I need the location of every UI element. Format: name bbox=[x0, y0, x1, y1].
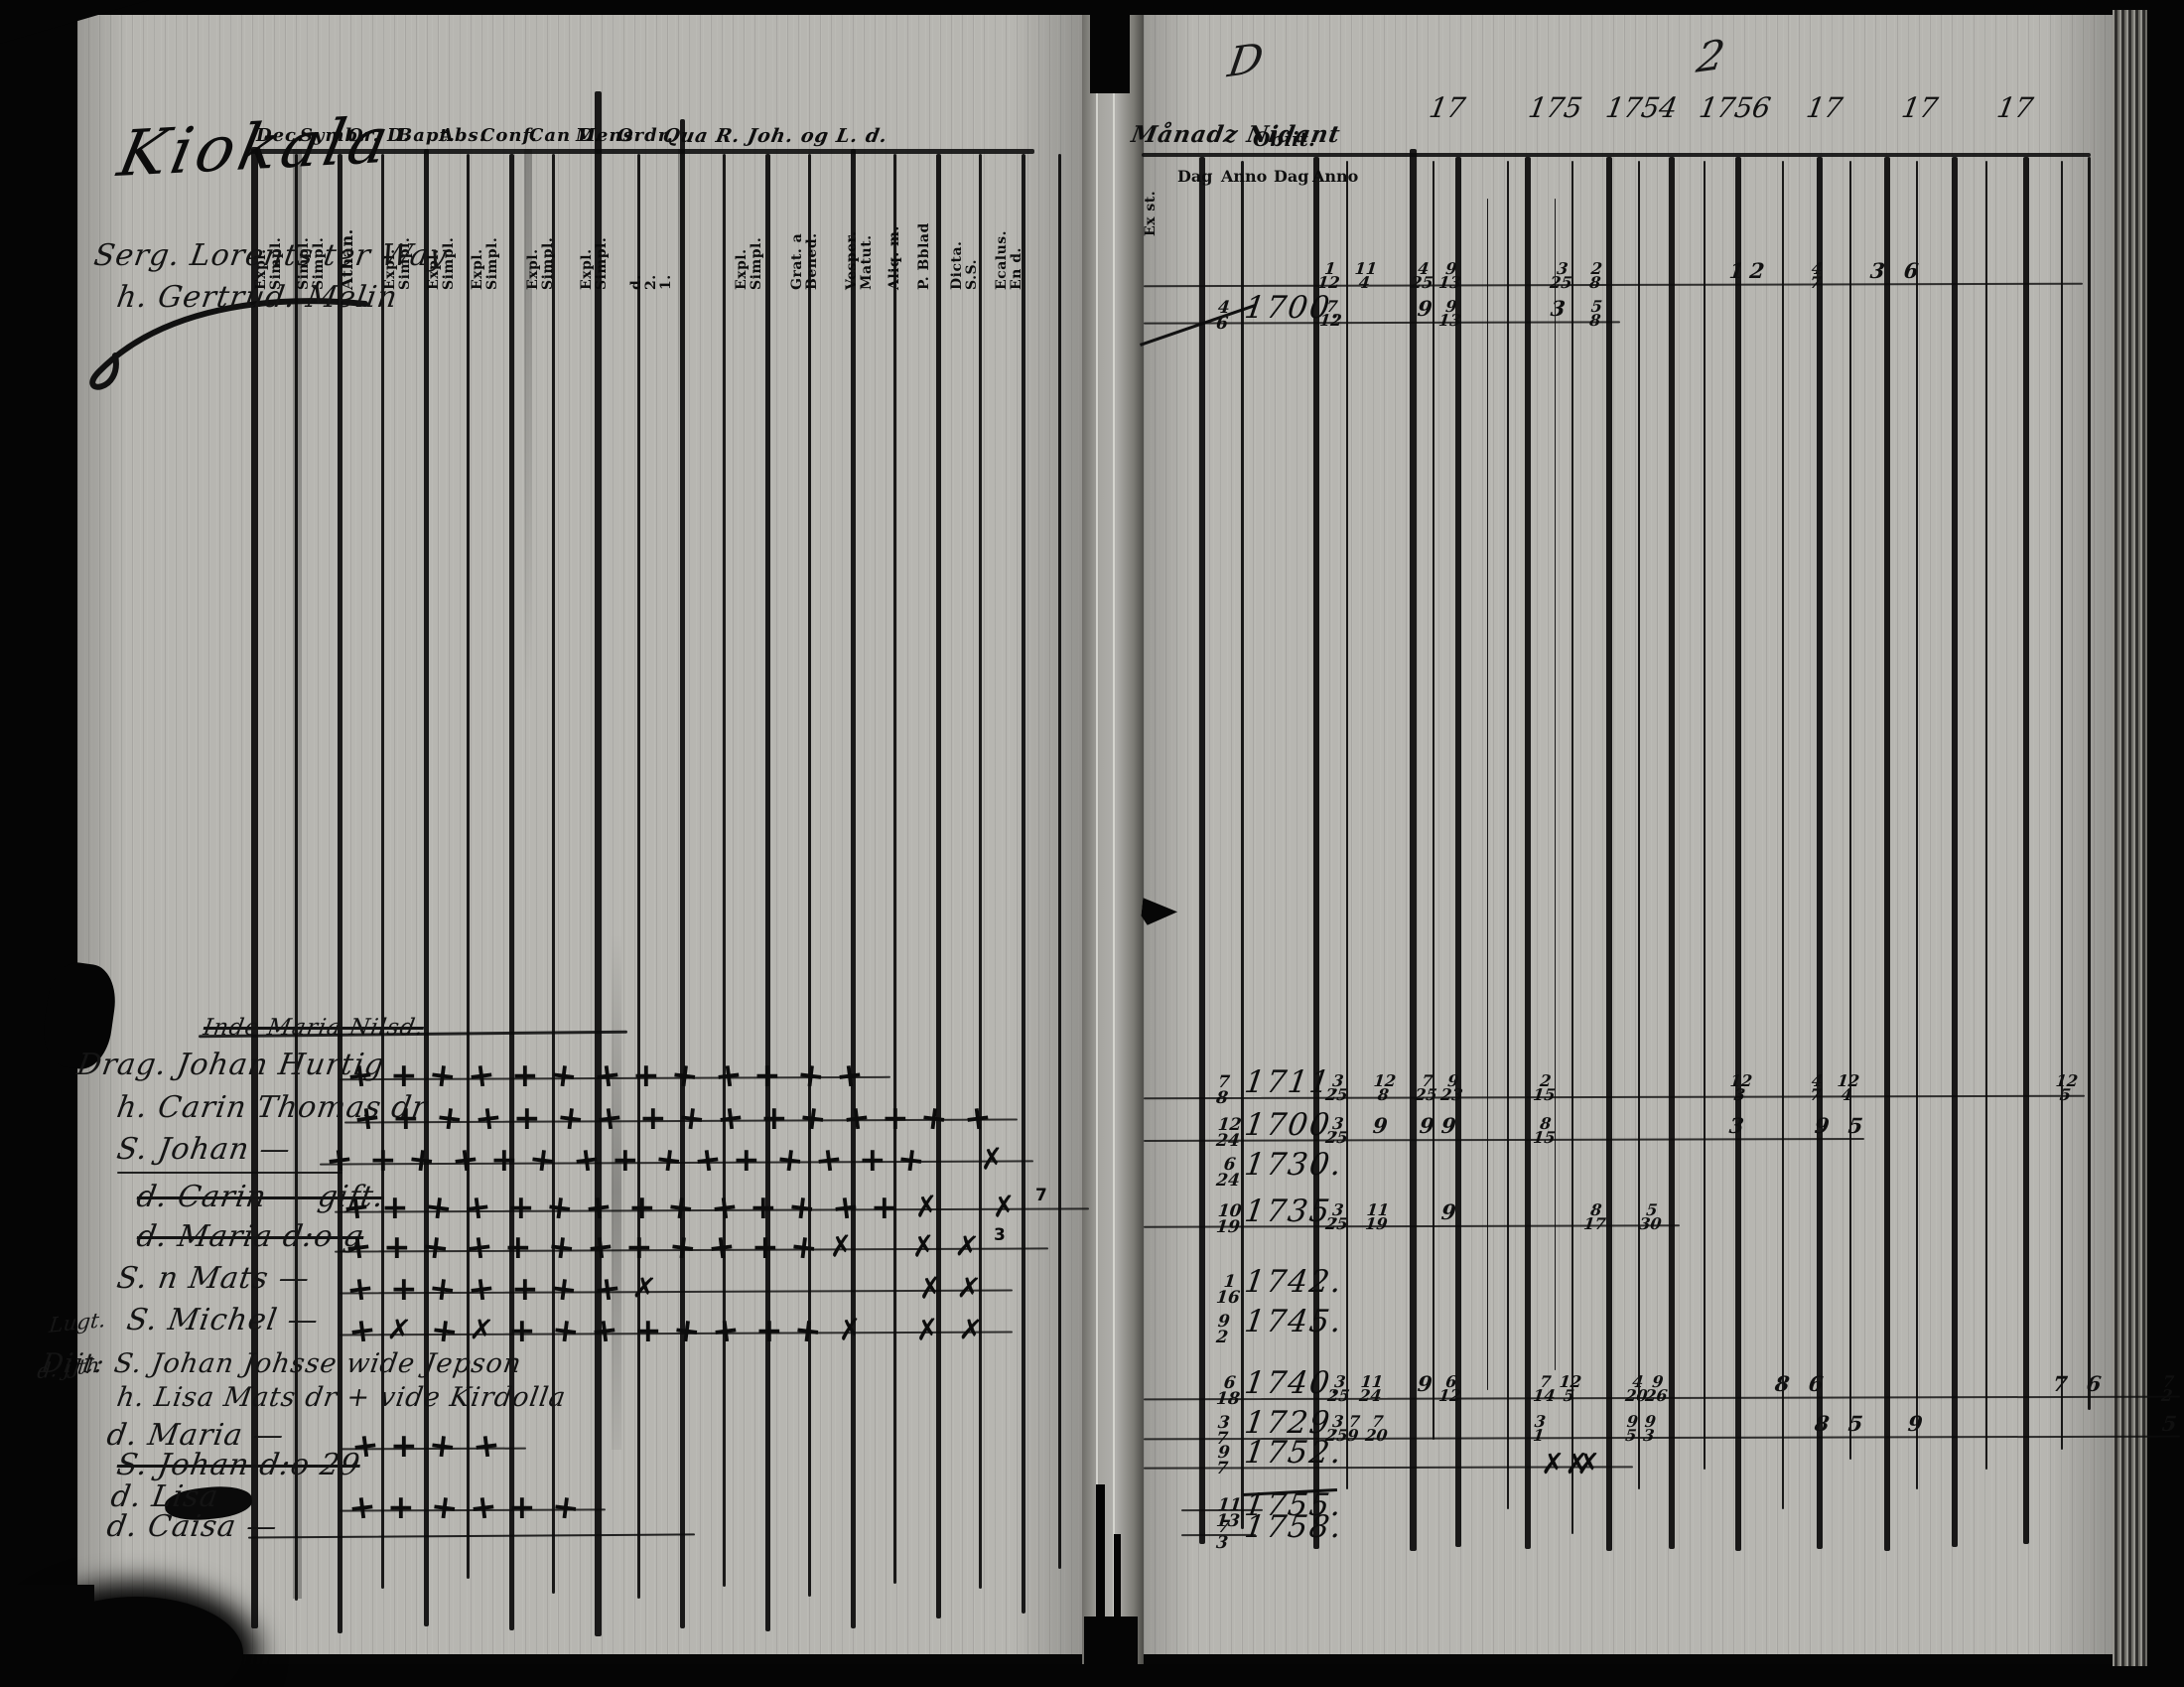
column-label-line: Ex st. bbox=[1144, 191, 1159, 236]
mark-plus-icon: + bbox=[715, 1096, 747, 1138]
ruled-line-vertical bbox=[1704, 161, 1706, 1470]
fraction-part: 24 bbox=[1215, 1173, 1240, 1189]
fraction-part: 3 bbox=[1643, 1429, 1656, 1443]
mark-plus-icon: + bbox=[750, 1188, 777, 1226]
mark-x-icon: ✗ bbox=[958, 1312, 985, 1347]
mark-x-icon: ✗ bbox=[386, 1312, 413, 1347]
fraction-part: 16 bbox=[1215, 1290, 1240, 1306]
mark-plus-icon: + bbox=[387, 1487, 415, 1526]
mark-x-icon: ✗ bbox=[910, 1228, 937, 1264]
column-label: Dicta.S.S. bbox=[950, 241, 980, 290]
entry-name: h. Lisa Mats dr + vide Kirdolla bbox=[115, 1382, 569, 1413]
ruled-line-vertical bbox=[1952, 157, 1958, 1547]
mark-plus-icon: + bbox=[671, 1309, 703, 1350]
ruled-line-vertical bbox=[1058, 154, 1061, 1569]
mark-plus-icon: + bbox=[546, 1225, 578, 1267]
gutter-highlight-line bbox=[1113, 0, 1115, 1687]
mark-plus-icon: + bbox=[508, 1487, 536, 1526]
mark-plus-icon: + bbox=[423, 1186, 455, 1227]
mark-plus-icon: + bbox=[527, 1138, 559, 1180]
ruled-line-vertical bbox=[637, 154, 640, 1599]
entry-name: h. Gertrud. Melin bbox=[114, 280, 400, 315]
fraction-part: 9 bbox=[1347, 1429, 1360, 1443]
entry-name: d. Caisa — bbox=[104, 1509, 280, 1544]
column-label-line: 1. bbox=[659, 274, 674, 290]
mark-plus-icon: + bbox=[834, 1054, 866, 1095]
fore-edge-pages bbox=[2113, 10, 2148, 1666]
mark-plus-icon: + bbox=[786, 1186, 818, 1227]
underline bbox=[117, 1172, 342, 1174]
mark-plus-icon: + bbox=[813, 1138, 845, 1180]
fraction-part: 25 bbox=[1325, 1131, 1349, 1145]
mark-plus-icon: + bbox=[383, 1227, 411, 1266]
fraction-part: 25 bbox=[1325, 1088, 1349, 1102]
fraction-part: 12 bbox=[1317, 276, 1341, 290]
ruled-line-vertical bbox=[2088, 157, 2091, 1410]
mark-x-icon: ✗ bbox=[991, 1189, 1018, 1224]
mark-plus-icon: + bbox=[508, 1311, 536, 1349]
parish-register-scan: Kiokala Månadz Nidant Obiit. Dec.Symb.Or… bbox=[0, 0, 2184, 1687]
mark-plus-icon: + bbox=[841, 1096, 873, 1138]
mark-plus-icon: + bbox=[369, 1140, 397, 1179]
ruled-line-vertical bbox=[1571, 161, 1573, 1534]
ruled-line-vertical bbox=[1669, 157, 1675, 1549]
ruled-line-vertical bbox=[1638, 161, 1640, 1489]
mark-plus-icon: + bbox=[962, 1096, 994, 1138]
mark-plus-icon: + bbox=[390, 1426, 418, 1465]
ruled-line-vertical bbox=[1735, 157, 1741, 1551]
mark-plus-icon: + bbox=[871, 1188, 898, 1226]
mark-plus-icon: + bbox=[755, 1311, 783, 1349]
obiit-label: Obiit. bbox=[1253, 127, 1315, 151]
ruled-line-vertical bbox=[595, 91, 602, 1636]
mark-plus-icon: + bbox=[381, 1188, 409, 1226]
gutter-highlight-line bbox=[1096, 0, 1098, 1687]
column-label: d.2.1. bbox=[629, 274, 674, 290]
ruled-line-vertical bbox=[893, 154, 896, 1584]
mark-x-icon: ✗ bbox=[469, 1312, 495, 1347]
mark-plus-icon: + bbox=[918, 1096, 950, 1138]
date-cell: 7 6 bbox=[2052, 1371, 2109, 1396]
fraction-part: 3 bbox=[1215, 1535, 1229, 1551]
entry-name: Drag. Johan Hurtig bbox=[74, 1048, 387, 1082]
ruled-line-vertical bbox=[1022, 154, 1025, 1614]
mark-x-icon: ✗ bbox=[954, 1228, 981, 1264]
date-cell: 9 bbox=[1417, 296, 1439, 321]
year-head: 1756 bbox=[1697, 91, 1773, 124]
header-term: Qua R. Joh. og L. d. bbox=[661, 125, 889, 147]
natus-obiit-subheader: Anno bbox=[1221, 167, 1267, 186]
fraction-part: 25 bbox=[1411, 276, 1434, 290]
ruled-line-vertical bbox=[1884, 157, 1890, 1551]
ruled-line-vertical bbox=[1313, 157, 1319, 1549]
ruled-line-vertical bbox=[1507, 161, 1509, 1509]
mark-x-icon: ✗ bbox=[913, 1189, 940, 1224]
fraction-part: 1 bbox=[1533, 1429, 1546, 1443]
mark-plus-icon: + bbox=[713, 1054, 745, 1095]
entry-name: S. Michel — bbox=[124, 1303, 321, 1337]
date-cell: 3 bbox=[1728, 1113, 1751, 1138]
ruled-line-vertical bbox=[680, 119, 685, 1628]
mark-plus-icon: + bbox=[464, 1225, 495, 1267]
fraction-part: 12 bbox=[1438, 1389, 1462, 1403]
mark-plus-icon: + bbox=[895, 1138, 927, 1180]
entry-name: d. Maria d:o g bbox=[134, 1219, 366, 1254]
mark-plus-icon: + bbox=[390, 1269, 418, 1308]
fraction-part: 19 bbox=[1365, 1217, 1389, 1231]
date-cell: 123 bbox=[1728, 1074, 1753, 1102]
mark-plus-icon: + bbox=[427, 1267, 459, 1309]
column-label-line: Simpl. bbox=[750, 237, 764, 290]
mark-x-icon: ✗ bbox=[914, 1312, 941, 1347]
birth-year: 1758. bbox=[1242, 1509, 1345, 1545]
natus-obiit-subheader: Dag bbox=[1274, 167, 1308, 186]
mark-plus-icon: + bbox=[692, 1138, 724, 1180]
mark-plus-icon: + bbox=[585, 1225, 616, 1267]
mark-plus-icon: + bbox=[507, 1188, 535, 1226]
column-label-line: Matut. bbox=[860, 230, 875, 290]
ink-streak bbox=[612, 933, 621, 1450]
ruled-line-vertical bbox=[851, 149, 856, 1628]
mark-plus-icon: + bbox=[592, 1267, 623, 1309]
mark-plus-icon: + bbox=[792, 1309, 824, 1350]
header-rule-left bbox=[250, 149, 1034, 154]
mark-plus-icon: + bbox=[669, 1054, 701, 1095]
date-cell: 9 5 bbox=[1814, 1113, 1870, 1138]
header-term: Dec. bbox=[256, 125, 304, 146]
mark-x-icon: ✗ bbox=[979, 1141, 1006, 1177]
ruled-line-vertical bbox=[765, 154, 770, 1631]
fraction-part: 8 bbox=[1589, 276, 1602, 290]
column-label-line: P. Bblad bbox=[917, 222, 932, 290]
date-cell: 8 5 bbox=[1814, 1411, 1870, 1436]
mark-plus-icon: + bbox=[710, 1309, 742, 1350]
ruled-line-vertical bbox=[979, 154, 982, 1589]
corner-fill-bottom-left bbox=[0, 1585, 94, 1687]
date-cell: 9 bbox=[1907, 1411, 1930, 1436]
mark-plus-icon: + bbox=[612, 1140, 639, 1179]
ruled-line-vertical bbox=[808, 154, 811, 1597]
row-rule bbox=[1181, 1509, 1263, 1511]
mark-plus-icon: + bbox=[583, 1186, 614, 1227]
header-term: Abs. bbox=[440, 125, 486, 146]
mark-number: 3 bbox=[994, 1225, 1006, 1245]
ruled-line-vertical bbox=[1849, 161, 1851, 1460]
mark-plus-icon: + bbox=[490, 1140, 518, 1179]
mark-plus-icon: + bbox=[788, 1225, 820, 1267]
mark-plus-icon: + bbox=[795, 1054, 827, 1095]
date-cell: 618 bbox=[1215, 1375, 1242, 1407]
date-cell: 12 bbox=[1728, 258, 1772, 283]
scan-edge-left bbox=[0, 0, 77, 1687]
mark-plus-icon: + bbox=[592, 1054, 623, 1095]
column-label-line: Expl. bbox=[526, 237, 541, 290]
mark-plus-icon: + bbox=[733, 1140, 760, 1179]
mark-plus-icon: + bbox=[709, 1186, 741, 1227]
mark-plus-icon: + bbox=[774, 1138, 806, 1180]
column-label: Expl.Simpl. bbox=[471, 237, 500, 290]
mark-plus-icon: + bbox=[511, 1269, 539, 1308]
exst-column-label: Ex st. bbox=[1144, 191, 1159, 236]
ruled-line-vertical bbox=[1985, 161, 1987, 1470]
date-cell: 3 bbox=[1550, 296, 1572, 321]
fraction-part: 24 bbox=[1359, 1389, 1383, 1403]
fraction-part: 25 bbox=[1415, 1088, 1438, 1102]
mark-plus-icon: + bbox=[859, 1140, 887, 1179]
mark-plus-icon: + bbox=[589, 1309, 620, 1350]
mark-plus-icon: + bbox=[473, 1096, 504, 1138]
year-head: 17 bbox=[1899, 91, 1940, 124]
mark-plus-icon: + bbox=[344, 1267, 376, 1309]
fraction-part: 2 bbox=[1215, 1330, 1229, 1345]
date-cell: 9 bbox=[1419, 1113, 1441, 1138]
mark-plus-icon: + bbox=[548, 1267, 580, 1309]
mark-plus-icon: + bbox=[429, 1485, 461, 1527]
column-label: Grat. aBened. bbox=[790, 233, 820, 291]
column-label-line: Grat. a bbox=[790, 233, 805, 291]
date-cell: 817 bbox=[1583, 1203, 1608, 1231]
ruled-line-vertical bbox=[1410, 149, 1417, 1551]
entry-name: h. Carin Thomas dr bbox=[114, 1090, 430, 1125]
mark-plus-icon: + bbox=[513, 1098, 541, 1137]
mark-plus-icon: + bbox=[462, 1186, 493, 1227]
ruled-line-vertical bbox=[552, 154, 555, 1594]
date-cell: 1019 bbox=[1215, 1203, 1242, 1235]
ruled-line-vertical bbox=[2061, 161, 2063, 1450]
mark-x-icon: ✗ bbox=[1576, 1447, 1600, 1480]
fraction-part: 25 bbox=[1550, 276, 1573, 290]
mark-plus-icon: + bbox=[760, 1098, 788, 1137]
mark-plus-icon: + bbox=[665, 1186, 697, 1227]
fraction-part: 5 bbox=[1625, 1429, 1638, 1443]
mark-x-icon: ✗ bbox=[631, 1270, 658, 1306]
mark-plus-icon: + bbox=[751, 1227, 779, 1266]
fraction-part: 8 bbox=[1377, 1088, 1390, 1102]
ruled-line-vertical bbox=[1606, 157, 1612, 1551]
fraction-part: 13 bbox=[1438, 276, 1462, 290]
mark-plus-icon: + bbox=[390, 1055, 418, 1094]
mark-plus-icon: + bbox=[406, 1138, 438, 1180]
row-rule bbox=[1181, 1534, 1256, 1536]
ruled-line-vertical bbox=[936, 154, 941, 1618]
mark-plus-icon: + bbox=[628, 1188, 656, 1226]
ruled-line-vertical bbox=[1346, 161, 1348, 1489]
column-label-line: Expl. bbox=[735, 237, 750, 290]
mark-plus-icon: + bbox=[550, 1309, 582, 1350]
mark-plus-icon: + bbox=[346, 1309, 378, 1350]
ruled-line-vertical bbox=[2023, 157, 2029, 1544]
date-cell: 125 bbox=[2054, 1074, 2079, 1102]
date-cell: 124 bbox=[1836, 1074, 1860, 1102]
mark-plus-icon: + bbox=[634, 1311, 662, 1349]
ruled-line-vertical bbox=[1555, 199, 1556, 1370]
mark-plus-icon: + bbox=[706, 1225, 738, 1267]
mark-plus-icon: + bbox=[544, 1186, 576, 1227]
ruled-line-vertical bbox=[1433, 161, 1434, 1440]
year-head: 17 bbox=[1804, 91, 1844, 124]
mark-plus-icon: + bbox=[351, 1096, 383, 1138]
mark-plus-icon: + bbox=[676, 1096, 708, 1138]
mark-plus-icon: + bbox=[632, 1055, 660, 1094]
date-cell: 5 bbox=[2161, 1411, 2184, 1436]
entry-name: Dijt: S. Johan Johsse wide Jepson bbox=[40, 1348, 524, 1379]
fraction-part: 25 bbox=[1327, 1389, 1351, 1403]
year-head: 175 bbox=[1526, 91, 1584, 124]
date-cell: 8 6 bbox=[1774, 1371, 1831, 1396]
mark-plus-icon: + bbox=[427, 1054, 459, 1095]
ruled-line-vertical bbox=[1916, 161, 1918, 1489]
column-label-line: S.S. bbox=[965, 241, 980, 290]
mark-x-icon: ✗ bbox=[837, 1312, 864, 1347]
year-head: 17 bbox=[1994, 91, 2035, 124]
date-cell: 9 bbox=[1417, 1371, 1439, 1396]
column-label: P. Bblad bbox=[917, 222, 932, 290]
fraction-part: 15 bbox=[1533, 1088, 1557, 1102]
mark-plus-icon: + bbox=[468, 1485, 499, 1527]
ruled-line-vertical bbox=[723, 154, 726, 1587]
natus-obiit-subheader: Dag bbox=[1177, 167, 1212, 186]
ruled-line-vertical bbox=[1455, 157, 1461, 1547]
ruled-line-vertical bbox=[1782, 161, 1784, 1509]
fraction-part: 20 bbox=[1365, 1429, 1389, 1443]
mark-plus-icon: + bbox=[653, 1138, 685, 1180]
mark-plus-icon: + bbox=[471, 1424, 502, 1466]
column-label: Vesper.Matut. bbox=[845, 230, 875, 290]
mark-plus-icon: + bbox=[342, 1225, 374, 1267]
mark-plus-icon: + bbox=[434, 1096, 466, 1138]
date-cell: 3 6 bbox=[1869, 258, 1926, 283]
mark-x-icon: ✗ bbox=[956, 1270, 983, 1306]
mark-plus-icon: + bbox=[555, 1096, 587, 1138]
column-label-line: Ecalus. bbox=[995, 230, 1010, 290]
gutter-shadow-bottom bbox=[1084, 1617, 1138, 1687]
mark-plus-icon: + bbox=[550, 1485, 582, 1527]
date-cell: 624 bbox=[1215, 1157, 1242, 1189]
mark-plus-icon: + bbox=[466, 1054, 497, 1095]
year-head: 1754 bbox=[1603, 91, 1680, 124]
ruled-line-vertical bbox=[1199, 157, 1205, 1544]
date-cell: 9 bbox=[1440, 1113, 1463, 1138]
column-label-line: Expl. bbox=[580, 237, 595, 290]
fraction-part: 25 bbox=[1325, 1217, 1349, 1231]
mark-plus-icon: + bbox=[324, 1138, 355, 1180]
fraction-part: 12 bbox=[1319, 314, 1343, 328]
mark-plus-icon: + bbox=[548, 1054, 580, 1095]
mark-plus-icon: + bbox=[639, 1098, 667, 1137]
gutter-ink-top bbox=[1090, 14, 1130, 93]
fraction-part: 14 bbox=[1533, 1389, 1557, 1403]
mark-plus-icon: + bbox=[429, 1309, 461, 1350]
mark-number: 7 bbox=[1035, 1186, 1047, 1205]
date-cell: 1224 bbox=[1215, 1117, 1242, 1149]
ruled-line-vertical bbox=[1817, 157, 1823, 1549]
date-cell: 530 bbox=[1639, 1203, 1664, 1231]
column-label-line: Expl. bbox=[471, 237, 485, 290]
birth-year: 1730. bbox=[1242, 1147, 1345, 1183]
ruled-line-vertical bbox=[1525, 157, 1531, 1549]
column-label-line: 2. bbox=[644, 274, 659, 290]
column-label-line: Simpl. bbox=[485, 237, 500, 290]
fraction-part: 5 bbox=[1563, 1389, 1575, 1403]
mark-plus-icon: + bbox=[571, 1138, 603, 1180]
mark-x-icon: ✗ bbox=[828, 1228, 855, 1264]
mark-plus-icon: + bbox=[625, 1227, 653, 1266]
birth-year: 1742. bbox=[1242, 1264, 1345, 1300]
mark-plus-icon: + bbox=[753, 1055, 781, 1094]
date-cell: 9 bbox=[1372, 1113, 1395, 1138]
mark-plus-icon: + bbox=[667, 1225, 699, 1267]
entry-name: S. Johan d:o 29 bbox=[114, 1448, 362, 1482]
mark-plus-icon: + bbox=[427, 1424, 459, 1466]
fraction-part: 4 bbox=[1358, 276, 1371, 290]
column-label-line: Dicta. bbox=[950, 241, 965, 290]
mark-plus-icon: + bbox=[346, 1485, 378, 1527]
entry-name: S. n Mats — bbox=[114, 1261, 313, 1296]
date-cell: 9 bbox=[1440, 1199, 1463, 1224]
scan-edge-top bbox=[0, 0, 2184, 15]
ruled-line-vertical bbox=[1487, 199, 1488, 1390]
mark-plus-icon: + bbox=[594, 1096, 625, 1138]
mark-plus-icon: + bbox=[797, 1096, 829, 1138]
column-label: Ecalus.En d. bbox=[995, 230, 1024, 290]
fraction-part: 23 bbox=[1440, 1088, 1464, 1102]
mark-plus-icon: + bbox=[420, 1225, 452, 1267]
entry-name: Serg. Lorents ter Way bbox=[91, 238, 450, 273]
mark-plus-icon: + bbox=[511, 1055, 539, 1094]
year-head: 17 bbox=[1427, 91, 1467, 124]
mark-plus-icon: + bbox=[466, 1267, 497, 1309]
mark-plus-icon: + bbox=[504, 1227, 532, 1266]
mark-x-icon: ✗ bbox=[917, 1270, 944, 1306]
mark-plus-icon: + bbox=[450, 1138, 481, 1180]
mark-plus-icon: + bbox=[830, 1186, 862, 1227]
ink-streak bbox=[524, 149, 532, 705]
header-rule-right bbox=[1142, 153, 2091, 157]
column-label: Expl.Simpl. bbox=[735, 237, 764, 290]
entry-name: S. Johan — bbox=[114, 1132, 293, 1167]
birth-year: 1745. bbox=[1242, 1304, 1345, 1339]
date-cell: 116 bbox=[1215, 1274, 1242, 1306]
mark-plus-icon: + bbox=[882, 1098, 909, 1137]
mark-plus-icon: + bbox=[392, 1098, 420, 1137]
birth-year: 1752. bbox=[1242, 1435, 1345, 1471]
